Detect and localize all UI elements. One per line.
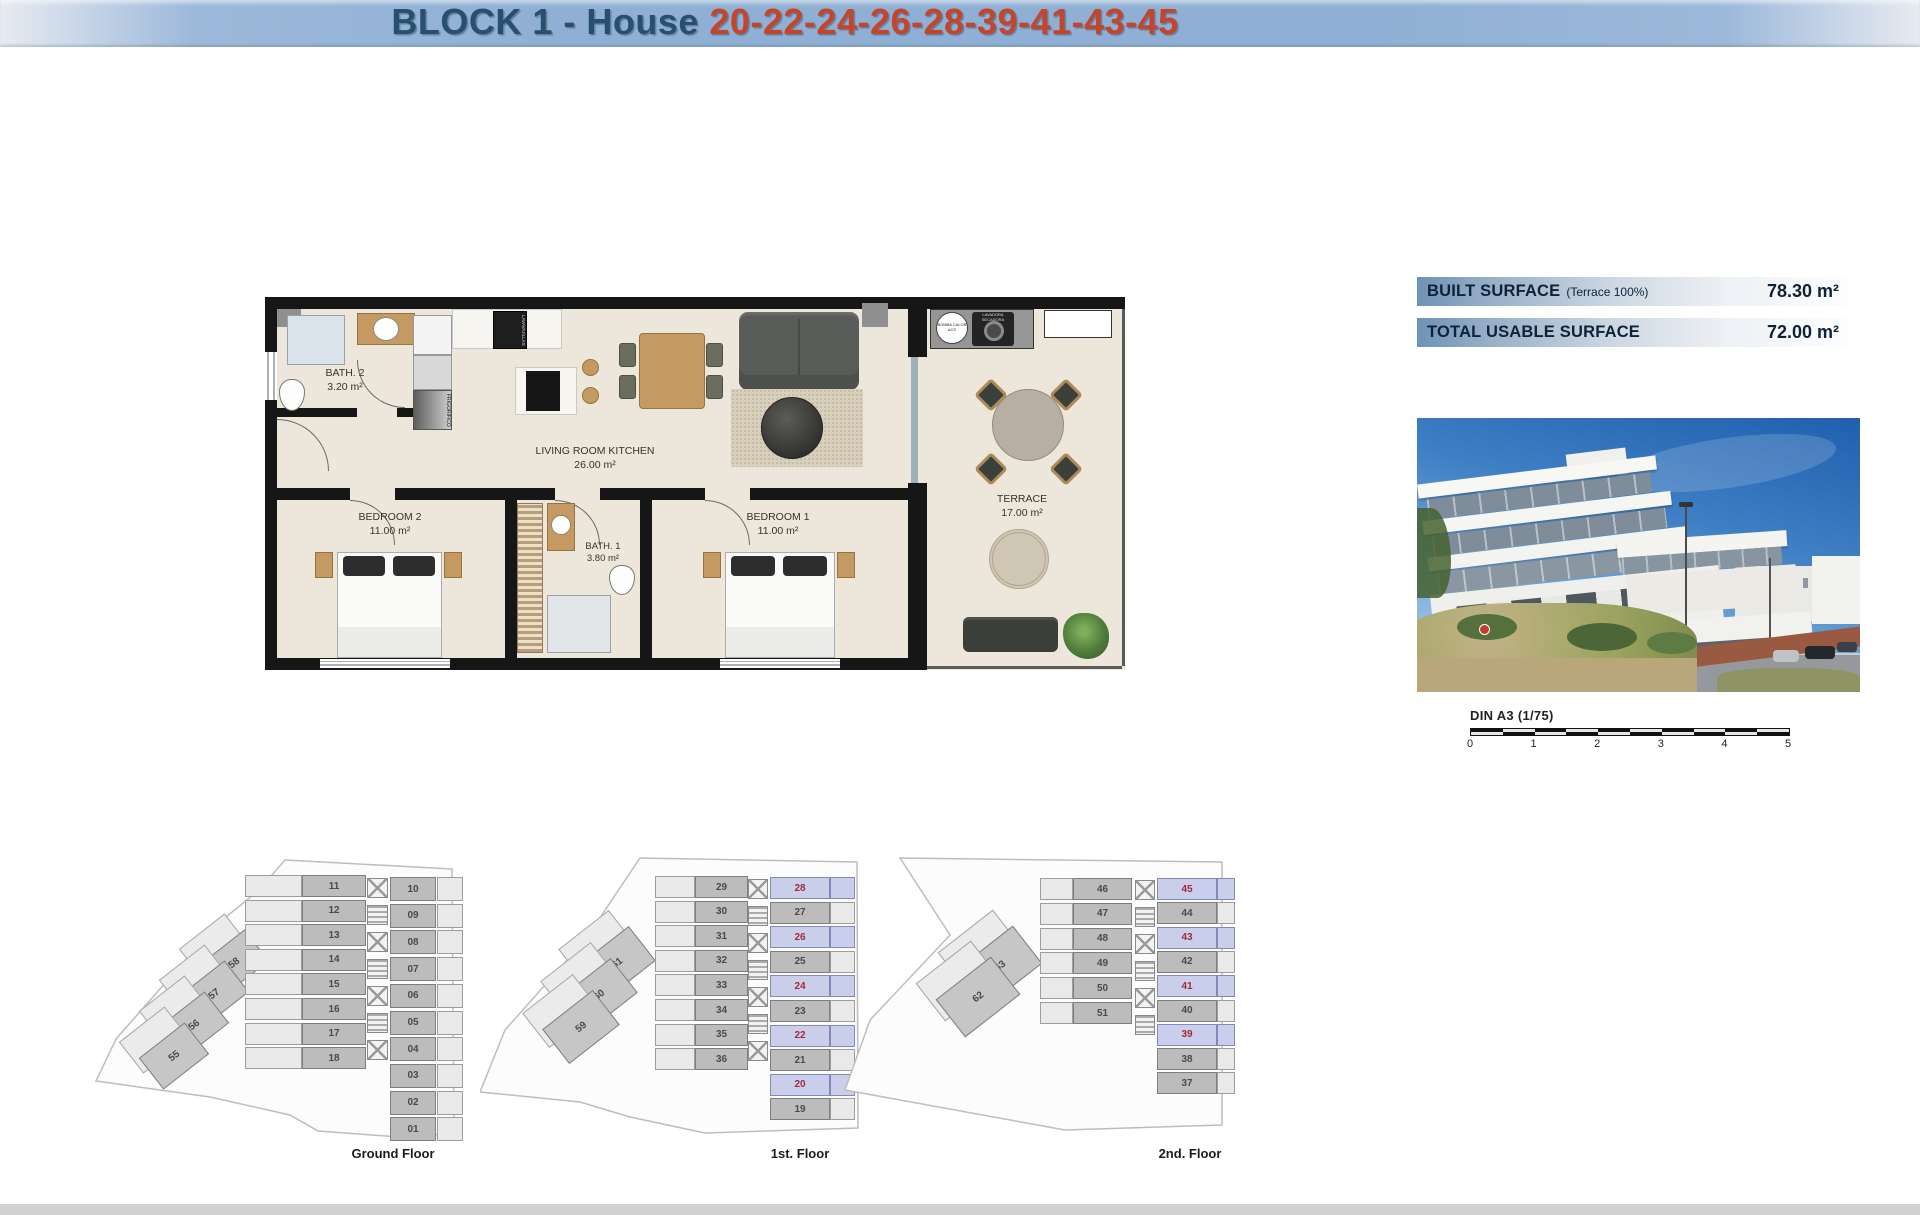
unit-cell: 21 [770,1049,830,1071]
second-floor-plan: 2nd. Floor 63624647484950514544434241403… [840,855,1235,1155]
nightstand [703,552,721,578]
room-name: LIVING ROOM KITCHEN [535,445,654,459]
built-surface-note: (Terrace 100%) [1566,285,1648,299]
sink-basin [373,317,399,341]
road-sign [1479,624,1490,635]
nightstand [837,552,855,578]
stair-shaft [1135,934,1155,954]
dining-table [639,333,705,409]
chair [706,375,723,399]
unit-cell-light [1040,977,1073,999]
toilet [279,379,305,411]
wall [600,488,705,500]
unit-cell-light [245,949,302,971]
stair-shaft [367,878,388,898]
wall [908,309,927,357]
unit-cell-light [655,1024,695,1046]
stair-shaft [1135,988,1155,1008]
scale-tick: 2 [1594,738,1600,750]
room-label-bedroom1: BEDROOM 1 11.00 m² [746,511,809,538]
toilet [609,565,635,595]
wall [277,488,350,500]
usable-surface-label: TOTAL USABLE SURFACE [1427,323,1640,342]
scale-segment [1471,729,1503,735]
shower [547,595,611,653]
unit-cell-light [1217,975,1235,997]
scale-bar-label: DIN A3 (1/75) [1470,708,1554,723]
unit-cell-light [437,904,463,928]
unit-cell-light [245,1047,302,1069]
main-floorplan: FRIGORIFICO LAVAVAJILLAS BOMBA CALOR ACS… [265,297,1125,670]
unit-cell: 38 [1157,1048,1217,1070]
lamp-post [1685,506,1687,636]
vegetation [1417,658,1697,692]
page-title: BLOCK 1 - House 20-22-24-26-28-39-41-43-… [0,1,1570,43]
unit-cell-light [655,999,695,1021]
room-name: BATH. 2 [326,367,365,381]
room-label-bedroom2: BEDROOM 2 11.00 m² [358,511,421,538]
unit-cell-light [437,1064,463,1088]
chair [619,375,636,399]
unit-cell-light [245,973,302,995]
scale-segment [1694,729,1726,735]
unit-cell-light [1040,928,1073,950]
unit-cell: 14 [302,949,366,971]
unit-cell: 27 [770,902,830,924]
unit-cell-light [1040,903,1073,925]
coffee-table [761,397,823,459]
window [320,659,450,668]
fridge: FRIGORIFICO [413,390,452,430]
scale-tick: 3 [1658,738,1664,750]
room-name: BEDROOM 1 [746,511,809,525]
scale-segment [1598,729,1630,735]
round-rug [989,529,1049,589]
unit-cell: 12 [302,900,366,922]
usable-surface-value: 72.00 m² [1767,322,1839,343]
unit-cell-light [245,998,302,1020]
unit-cell-light [1040,952,1073,974]
room-name: BATH. 1 [585,541,620,553]
unit-cell-light [1217,1048,1235,1070]
pillow [393,556,435,576]
unit-cell: 23 [770,1000,830,1022]
lamp-head [1679,502,1693,507]
stair-shaft [367,986,388,1006]
unit-cell: 29 [695,876,748,898]
room-label-bath2: BATH. 2 3.20 m² [326,367,365,394]
car [1805,646,1835,659]
unit-cell-light [655,901,695,923]
washer-drum [984,321,1004,341]
first-floor-plan: 1st. Floor 61605929303132333435362827262… [480,855,860,1155]
terrace-chair [1049,452,1083,486]
scale-segment [1630,729,1662,735]
unit-cell: 49 [1073,952,1132,974]
door-arc [277,419,329,471]
unit-cell-light [437,1117,463,1141]
unit-cell-light [655,950,695,972]
stair-shaft [1135,1015,1155,1035]
unit-cell: 43 [1157,927,1217,949]
unit-cell: 46 [1073,878,1132,900]
scale-segment [1535,729,1567,735]
scale-tick: 5 [1785,738,1791,750]
chair [706,343,723,367]
cabinet [413,315,452,355]
unit-cell-light [1217,927,1235,949]
scale-segment [1757,729,1789,735]
unit-cell: 24 [770,975,830,997]
title-block-label: BLOCK 1 - House [391,1,709,42]
unit-cell: 47 [1073,903,1132,925]
unit-cell-light [655,876,695,898]
unit-cell-light [655,925,695,947]
dishwasher: LAVAVAJILLAS [493,311,527,349]
unit-cell: 17 [302,1023,366,1045]
sink-basin [551,515,571,535]
window [265,352,277,400]
unit-cell-light [437,1011,463,1035]
stair-shaft [748,879,768,899]
floor-label: 2nd. Floor [1159,1146,1222,1161]
car [1773,650,1799,662]
cabinet [413,355,452,390]
scale-bar-segments [1470,728,1790,736]
unit-cell: 25 [770,951,830,973]
grass [1717,668,1860,692]
terrace-chair [974,452,1008,486]
unit-cell: 20 [770,1074,830,1096]
unit-cell: 01 [390,1117,436,1141]
car [1837,642,1857,652]
terrace-railing [927,666,1122,669]
stair-shaft [748,1041,768,1061]
unit-cell: 03 [390,1064,436,1088]
unit-cell: 34 [695,999,748,1021]
cooktop [526,371,560,411]
outdoor-sofa [963,617,1058,652]
unit-cell: 09 [390,904,436,928]
wall [927,297,1125,309]
unit-cell: 35 [695,1024,748,1046]
built-surface-value: 78.30 m² [1767,281,1839,302]
stair-shaft [1135,907,1155,927]
unit-cell-light [437,877,463,901]
unit-cell: 19 [770,1098,830,1120]
unit-cell-light [245,900,302,922]
unit-cell-light [1217,902,1235,924]
scale-tick: 4 [1721,738,1727,750]
stair-shaft [748,987,768,1007]
unit-cell: 04 [390,1037,436,1061]
room-area: 11.00 m² [746,525,809,539]
unit-cell-light [1217,1072,1235,1094]
scale-tick: 0 [1467,738,1473,750]
room-name: BEDROOM 2 [358,511,421,525]
scale-segment [1566,729,1598,735]
unit-cell: 30 [695,901,748,923]
far-building [1812,556,1860,624]
wall [265,297,927,309]
unit-cell: 41 [1157,975,1217,997]
unit-cell: 45 [1157,878,1217,900]
building-photo [1417,418,1860,692]
room-area: 11.00 m² [358,525,421,539]
ground-floor-plan: Ground Floor 585756551112131415161718100… [90,855,470,1155]
unit-cell: 50 [1073,977,1132,999]
pillow [783,556,827,576]
room-area: 3.20 m² [326,381,365,395]
shrub [1567,623,1637,651]
unit-cell: 28 [770,877,830,899]
chair [619,343,636,367]
scale-segment [1725,729,1757,735]
wall [1113,297,1125,309]
unit-cell-light [437,1037,463,1061]
ac-unit [1044,310,1112,338]
unit-cell: 33 [695,974,748,996]
unit-cell-light [437,957,463,981]
unit-cell-light [437,930,463,954]
room-label-living: LIVING ROOM KITCHEN 26.00 m² [535,445,654,472]
room-label-bath1: BATH. 1 3.80 m² [585,541,620,566]
stair-shaft [367,959,388,979]
pillow [343,556,385,576]
room-area: 17.00 m² [997,507,1047,521]
heat-pump: BOMBA CALOR ACS [936,312,968,344]
stair-shaft [1135,880,1155,900]
nightstand [315,552,333,578]
unit-cell: 51 [1073,1002,1132,1024]
shrub [1647,632,1697,654]
unit-cell-light [245,1023,302,1045]
pillar [862,303,888,327]
unit-cell-light [245,875,302,897]
unit-cell-light [1217,951,1235,973]
unit-cell: 07 [390,957,436,981]
unit-cell: 44 [1157,902,1217,924]
unit-cell-light [437,1091,463,1115]
usable-surface-row: TOTAL USABLE SURFACE 72.00 m² [1417,318,1849,347]
scale-segment [1662,729,1694,735]
unit-cell: 05 [390,1011,436,1035]
unit-cell: 48 [1073,928,1132,950]
title-house-numbers: 20-22-24-26-28-39-41-43-45 [709,1,1178,42]
unit-cell-light [1217,1024,1235,1046]
wall [397,408,413,417]
unit-cell: 16 [302,998,366,1020]
unit-cell: 13 [302,924,366,946]
nightstand [444,552,462,578]
sliding-door [911,357,918,483]
unit-cell: 36 [695,1048,748,1070]
scale-segment [1503,729,1535,735]
stool [582,359,599,376]
unit-cell: 40 [1157,1000,1217,1022]
unit-cell-light [1217,1000,1235,1022]
wall [395,488,555,500]
stool [582,387,599,404]
unit-cell: 18 [302,1047,366,1069]
room-area: 3.80 m² [585,553,620,565]
terrace-railing [1122,309,1125,666]
footer-strip [0,1204,1920,1215]
unit-cell: 10 [390,877,436,901]
plant [1063,613,1109,659]
unit-cell: 08 [390,930,436,954]
unit-cell: 37 [1157,1072,1217,1094]
scale-bar: DIN A3 (1/75) 012345 [1468,708,1798,752]
stair-shaft [748,960,768,980]
wall [505,500,517,658]
floor-label: 1st. Floor [771,1146,830,1161]
sofa-seam [798,319,800,375]
window [720,659,840,668]
wall [908,483,927,658]
stair-shaft [367,932,388,952]
scale-tick: 1 [1531,738,1537,750]
unit-cell-light [655,1048,695,1070]
unit-cell: 31 [695,925,748,947]
wall [750,488,908,500]
unit-cell: 15 [302,973,366,995]
unit-cell: 32 [695,950,748,972]
built-surface-label: BUILT SURFACE [1427,282,1560,301]
door-arc [705,500,750,545]
floor-label: Ground Floor [351,1146,434,1161]
unit-cell: 02 [390,1091,436,1115]
built-surface-row: BUILT SURFACE (Terrace 100%) 78.30 m² [1417,277,1849,306]
stair-shaft [1135,961,1155,981]
pillow [731,556,775,576]
unit-cell-light [1217,878,1235,900]
stair-shaft [367,1013,388,1033]
unit-cell: 06 [390,984,436,1008]
stair-shaft [748,933,768,953]
wardrobe [517,503,543,653]
stair-shaft [367,905,388,925]
room-label-terrace: TERRACE 17.00 m² [997,493,1047,520]
unit-cell: 42 [1157,951,1217,973]
unit-cell-light [655,974,695,996]
unit-cell-light [1040,878,1073,900]
unit-cell-light [437,984,463,1008]
unit-cell: 22 [770,1025,830,1047]
stair-shaft [748,906,768,926]
stair-shaft [367,1040,388,1060]
room-name: TERRACE [997,493,1047,507]
lamp-post [1769,558,1771,638]
unit-cell-light [245,924,302,946]
shower [287,315,345,365]
unit-cell-light [1040,1002,1073,1024]
unit-cell: 26 [770,926,830,948]
room-area: 26.00 m² [535,459,654,473]
unit-cell: 39 [1157,1024,1217,1046]
stair-shaft [748,1014,768,1034]
wall [640,500,652,658]
unit-cell: 11 [302,875,366,897]
